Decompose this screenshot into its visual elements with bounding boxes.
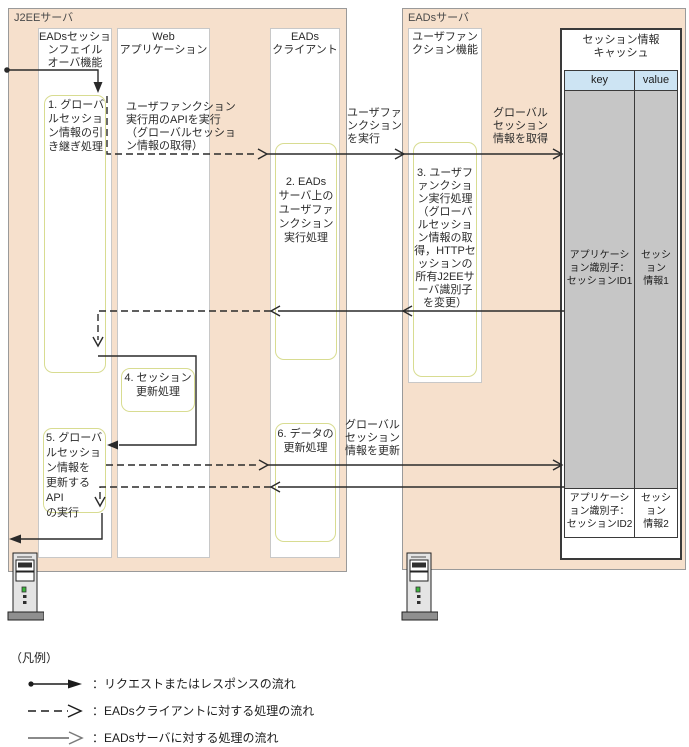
lane-eads-client-title: EADs クライアント <box>270 31 340 57</box>
eads-server-flow-arrow-icon <box>27 730 85 746</box>
step-6-label: 6. データの 更新処理 <box>275 427 336 455</box>
step-3-label: 3. ユーザフ ァンクショ ン実行処理 （グローバ ルセッショ ン情報の取 得，… <box>413 167 477 310</box>
server-icon-j2ee <box>6 552 44 622</box>
lane-failover-title: EADsセッショ ンフェイル オーバ機能 <box>38 31 112 70</box>
server-icon-eads <box>400 552 438 622</box>
cache-row2-value: セッシ ョン 情報2 <box>634 492 678 531</box>
cache-header-key: key <box>564 70 635 91</box>
flow-label-api-exec: ユーザファンクション 実行用のAPIを実行 （グローバルセッショ ン情報の取得） <box>126 101 236 153</box>
flow-label-update-info: グローバル セッション 情報を更新 <box>345 419 400 458</box>
cache-row1-value-cell <box>634 90 678 489</box>
cache-header-value: value <box>634 70 678 91</box>
eads-server-title: EADsサーバ <box>408 12 469 25</box>
step-4-label: 4. セッション 更新処理 <box>121 371 195 399</box>
request-response-arrow-icon <box>27 676 85 692</box>
cache-row1-key: アプリケーシ ョン識別子： セッションID1 <box>565 249 634 288</box>
legend-item-client-flow-label: ：EADsクライアントに対する処理の流れ <box>92 704 314 719</box>
step-1-label: 1. グローバ ルセッショ ン情報の引 き継ぎ処理 <box>48 98 106 154</box>
lane-web-application-title: Web アプリケーション <box>117 31 210 57</box>
j2ee-server-title: J2EEサーバ <box>14 12 73 25</box>
step-2-label: 2. EADs サーバ上の ユーザファ ンクション 実行処理 <box>275 175 337 245</box>
legend-item-server-flow-label: ：EADsサーバに対する処理の流れ <box>92 731 279 746</box>
cache-row2-key: アプリケーシ ョン識別子： セッションID2 <box>565 492 634 531</box>
legend-item-request-label: ：リクエストまたはレスポンスの流れ <box>92 677 296 692</box>
legend-title: （凡例） <box>10 649 58 666</box>
step-5-label: 5. グローバ ルセッショ ン情報を 更新するAPI の実行 <box>46 431 106 521</box>
cache-row1-value: セッシ ョン 情報1 <box>634 249 678 288</box>
cache-row1-key-cell <box>564 90 635 489</box>
flow-label-get-info: グローバル セッション 情報を取得 <box>493 107 548 146</box>
sequence-diagram: J2EEサーバ EADsサーバ EADsセッショ ンフェイル オーバ機能 Web… <box>0 0 689 747</box>
eads-client-flow-arrow-icon <box>27 703 85 719</box>
flow-label-func-exec: ユーザファ ンクション を実行 <box>347 107 402 146</box>
lane-user-function-title: ユーザファン クション機能 <box>408 31 482 57</box>
session-cache-title: セッション情報 キャッシュ <box>560 34 682 60</box>
